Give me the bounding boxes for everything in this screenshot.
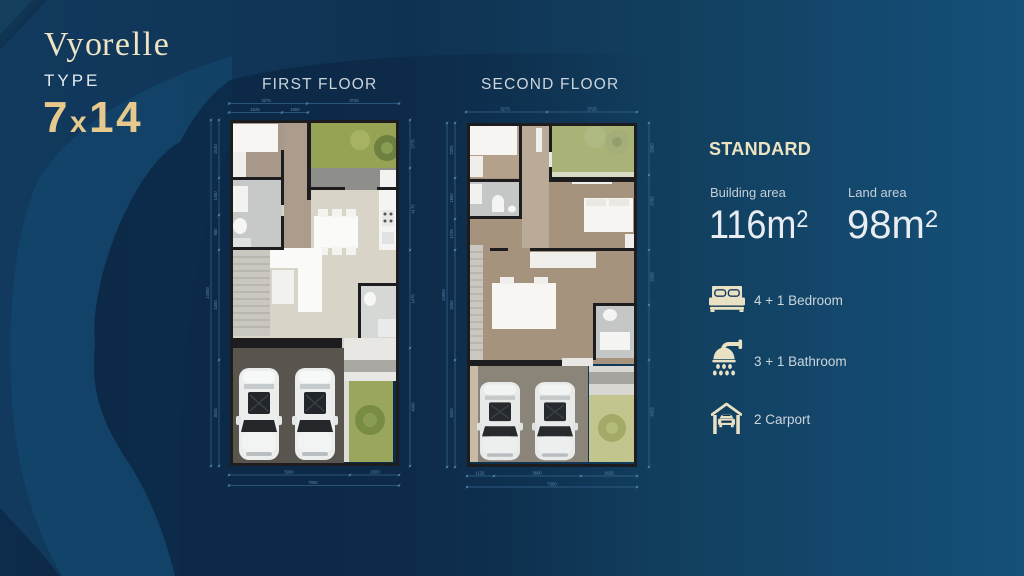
svg-text:14000: 14000 — [441, 289, 446, 301]
svg-text:2775: 2775 — [411, 139, 416, 149]
svg-text:4175: 4175 — [411, 204, 416, 214]
svg-text:2000: 2000 — [370, 470, 380, 475]
svg-text:14000: 14000 — [205, 287, 210, 299]
svg-text:1725: 1725 — [449, 229, 454, 239]
svg-text:5000: 5000 — [284, 470, 294, 475]
svg-text:4000: 4000 — [411, 402, 416, 412]
svg-text:900: 900 — [213, 228, 218, 236]
svg-text:2200: 2200 — [650, 272, 655, 282]
svg-text:3275: 3275 — [261, 98, 271, 103]
svg-text:1125: 1125 — [475, 471, 485, 476]
svg-text:3450: 3450 — [449, 300, 454, 310]
svg-text:4325: 4325 — [650, 407, 655, 417]
svg-text:1000: 1000 — [290, 107, 300, 112]
svg-text:2325: 2325 — [449, 145, 454, 155]
svg-text:1625: 1625 — [604, 471, 614, 476]
svg-text:7000: 7000 — [308, 480, 318, 485]
svg-text:3725: 3725 — [587, 107, 597, 112]
svg-text:3300: 3300 — [650, 143, 655, 153]
svg-text:3625: 3625 — [213, 408, 218, 418]
svg-text:4025: 4025 — [449, 408, 454, 418]
svg-text:2700: 2700 — [650, 196, 655, 206]
svg-text:1900: 1900 — [449, 193, 454, 203]
svg-text:3725: 3725 — [349, 98, 359, 103]
svg-text:2100: 2100 — [213, 144, 218, 154]
svg-text:4300: 4300 — [213, 300, 218, 310]
svg-text:3275: 3275 — [500, 107, 510, 112]
svg-text:1475: 1475 — [411, 294, 416, 304]
svg-text:3600: 3600 — [532, 471, 542, 476]
svg-text:7350: 7350 — [547, 482, 557, 487]
svg-text:1025: 1025 — [250, 107, 260, 112]
svg-text:1450: 1450 — [213, 191, 218, 201]
